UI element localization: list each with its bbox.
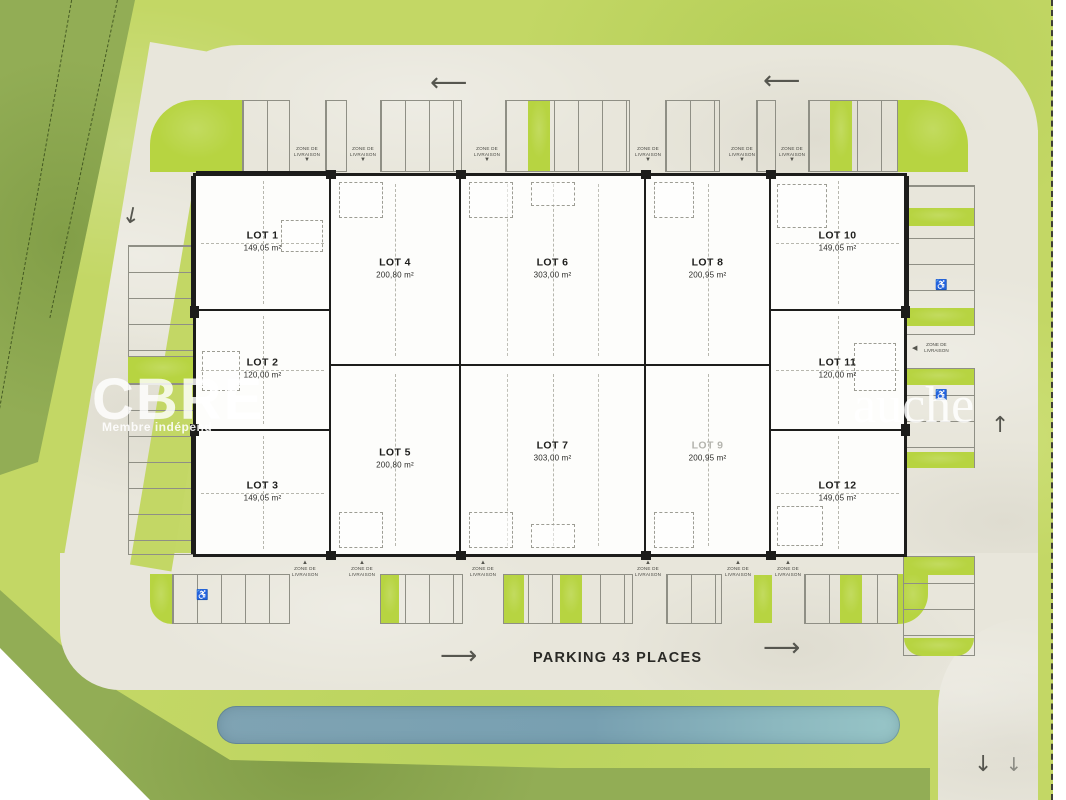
delivery-zone-label: ▲ZONE DE LIVRAISON: [769, 560, 807, 577]
parking-stalls: [665, 100, 720, 172]
lot-6: LOT 6303,00 m²: [461, 176, 646, 366]
lot-area: 200,95 m²: [646, 453, 769, 462]
lot-name: LOT 5: [331, 447, 459, 459]
wall-pier: [766, 551, 776, 560]
lot-1: LOT 1149,05 m²: [196, 176, 331, 311]
triangle-down-icon: ▼: [360, 157, 366, 163]
dashed-office-outline: [469, 182, 513, 218]
wall-pier: [641, 551, 651, 560]
lot-name: LOT 1: [196, 229, 329, 241]
delivery-zone-label: ZONE DE LIVRAISON▼: [723, 146, 761, 163]
triangle-down-icon: ▼: [304, 157, 310, 163]
green-strip: [504, 575, 524, 623]
dashed-office-outline: [777, 506, 823, 546]
lot-area: 149,05 m²: [196, 493, 329, 502]
wall-pier: [766, 170, 776, 179]
dashed-office-outline: [654, 182, 694, 218]
lot-8: LOT 8200,95 m²: [646, 176, 771, 366]
lot-area: 200,80 m²: [331, 461, 459, 470]
green-strip: [904, 308, 974, 326]
delivery-zone-label: ▲ZONE DE LIVRAISON: [286, 560, 324, 577]
lot-7: LOT 7303,00 m²: [461, 366, 646, 554]
green-strip: [150, 100, 242, 172]
triangle-left-icon: ◀: [912, 344, 917, 352]
parking-stalls: [505, 100, 630, 172]
lot-area: 149,05 m²: [771, 493, 904, 502]
triangle-down-icon: ▼: [739, 157, 745, 163]
brand-watermark-subtitle: Membre indépend: [102, 420, 212, 434]
dashed-office-outline: [777, 184, 827, 228]
green-strip: [840, 575, 862, 623]
parking-stalls: [808, 100, 898, 172]
lot-name: LOT 7: [461, 439, 644, 451]
warehouse-building: LOT 1149,05 m² LOT 2120,00 m² LOT 3149,0…: [193, 173, 907, 557]
lot-area: 303,00 m²: [461, 453, 644, 462]
dashed-office-outline: [654, 512, 694, 548]
parking-stalls: [666, 574, 722, 624]
green-strip: [528, 101, 550, 171]
delivery-zone-label: ▲ZONE DE LIVRAISON: [719, 560, 757, 577]
wall-segment: [196, 171, 336, 176]
dashed-office-outline: [339, 182, 383, 218]
traffic-arrow-up: ↑: [991, 413, 1009, 438]
traffic-arrow-right: ⟶: [763, 633, 800, 663]
lot-area: 200,80 m²: [331, 271, 459, 280]
accessible-parking-icon: ♿: [196, 590, 208, 601]
delivery-zone-label: ▲ZONE DE LIVRAISON: [464, 560, 502, 577]
delivery-zone-label: ZONE DE LIVRAISON▼: [288, 146, 326, 163]
dashed-office-outline: [339, 512, 383, 548]
parking-stalls: [128, 245, 198, 357]
delivery-zone-label: ▲ZONE DE LIVRAISON: [343, 560, 381, 577]
property-boundary-line: [1051, 0, 1053, 800]
dashed-office-outline: [469, 512, 513, 548]
lot-name: LOT 8: [646, 257, 769, 269]
traffic-arrow-down: ↓: [1006, 754, 1022, 776]
lot-3: LOT 3149,05 m²: [196, 431, 331, 554]
green-strip: [560, 575, 582, 623]
green-strip: [381, 575, 399, 623]
lot-area: 149,05 m²: [771, 243, 904, 252]
green-strip: [904, 208, 974, 226]
traffic-arrow-right: ⟶: [440, 641, 477, 671]
lot-10: LOT 10149,05 m²: [771, 176, 904, 311]
lot-name: LOT 11: [771, 357, 904, 369]
triangle-down-icon: ▼: [484, 157, 490, 163]
delivery-zone-label: ZONE DE LIVRAISON▼: [773, 146, 811, 163]
parking-stalls: [242, 100, 290, 172]
site-plan: ♿ ♿ ♿ LOT 1149,05 m² LOT 2120,00 m² LOT …: [0, 0, 1066, 800]
green-strip: [904, 638, 974, 656]
lot-4: LOT 4200,80 m²: [331, 176, 461, 366]
wall-pier: [456, 551, 466, 560]
accessible-parking-icon: ♿: [935, 280, 947, 291]
green-strip: [830, 101, 852, 171]
delivery-zone-label: ZONE DE LIVRAISON▼: [629, 146, 667, 163]
lot-name: LOT 3: [196, 479, 329, 491]
lot-area: 303,00 m²: [461, 271, 644, 280]
lot-area: 149,05 m²: [196, 243, 329, 252]
parking-stalls: [172, 574, 290, 624]
delivery-zone-label: ◀ZONE DE LIVRAISON: [912, 342, 951, 353]
green-strip: [754, 575, 772, 623]
dashed-office-outline: [531, 182, 575, 206]
wall-pier: [456, 170, 466, 179]
wall-pier: [326, 551, 336, 560]
triangle-down-icon: ▼: [645, 157, 651, 163]
traffic-arrow-left: ⟵: [430, 68, 467, 98]
lot-name: LOT 10: [771, 229, 904, 241]
lot-area: 200,95 m²: [646, 271, 769, 280]
lot-name: LOT 6: [461, 257, 644, 269]
lot-5: LOT 5200,80 m²: [331, 366, 461, 554]
lot-name: LOT 12: [771, 479, 904, 491]
lot-9: LOT 9200,95 m²: [646, 366, 771, 554]
triangle-down-icon: ▼: [789, 157, 795, 163]
lot-12: LOT 12149,05 m²: [771, 431, 904, 554]
traffic-arrow-down: ↓: [974, 752, 992, 777]
right-watermark-fragment: auche: [853, 376, 974, 435]
delivery-zone-label: ZONE DE LIVRAISON▼: [468, 146, 506, 163]
lot-name: LOT 9: [646, 439, 769, 451]
green-strip: [904, 452, 974, 468]
delivery-zone-label: ▲ZONE DE LIVRAISON: [629, 560, 667, 577]
lot-name: LOT 4: [331, 257, 459, 269]
dashed-office-outline: [531, 524, 575, 548]
wall-pier: [641, 170, 651, 179]
traffic-arrow-left: ⟵: [763, 66, 800, 96]
parking-stalls: [380, 100, 462, 172]
parking-capacity-label: PARKING 43 PLACES: [533, 650, 702, 666]
wall-segment: [904, 176, 909, 316]
delivery-zone-label: ZONE DE LIVRAISON▼: [344, 146, 382, 163]
green-strip: [904, 557, 974, 575]
water-basin: [217, 706, 900, 744]
